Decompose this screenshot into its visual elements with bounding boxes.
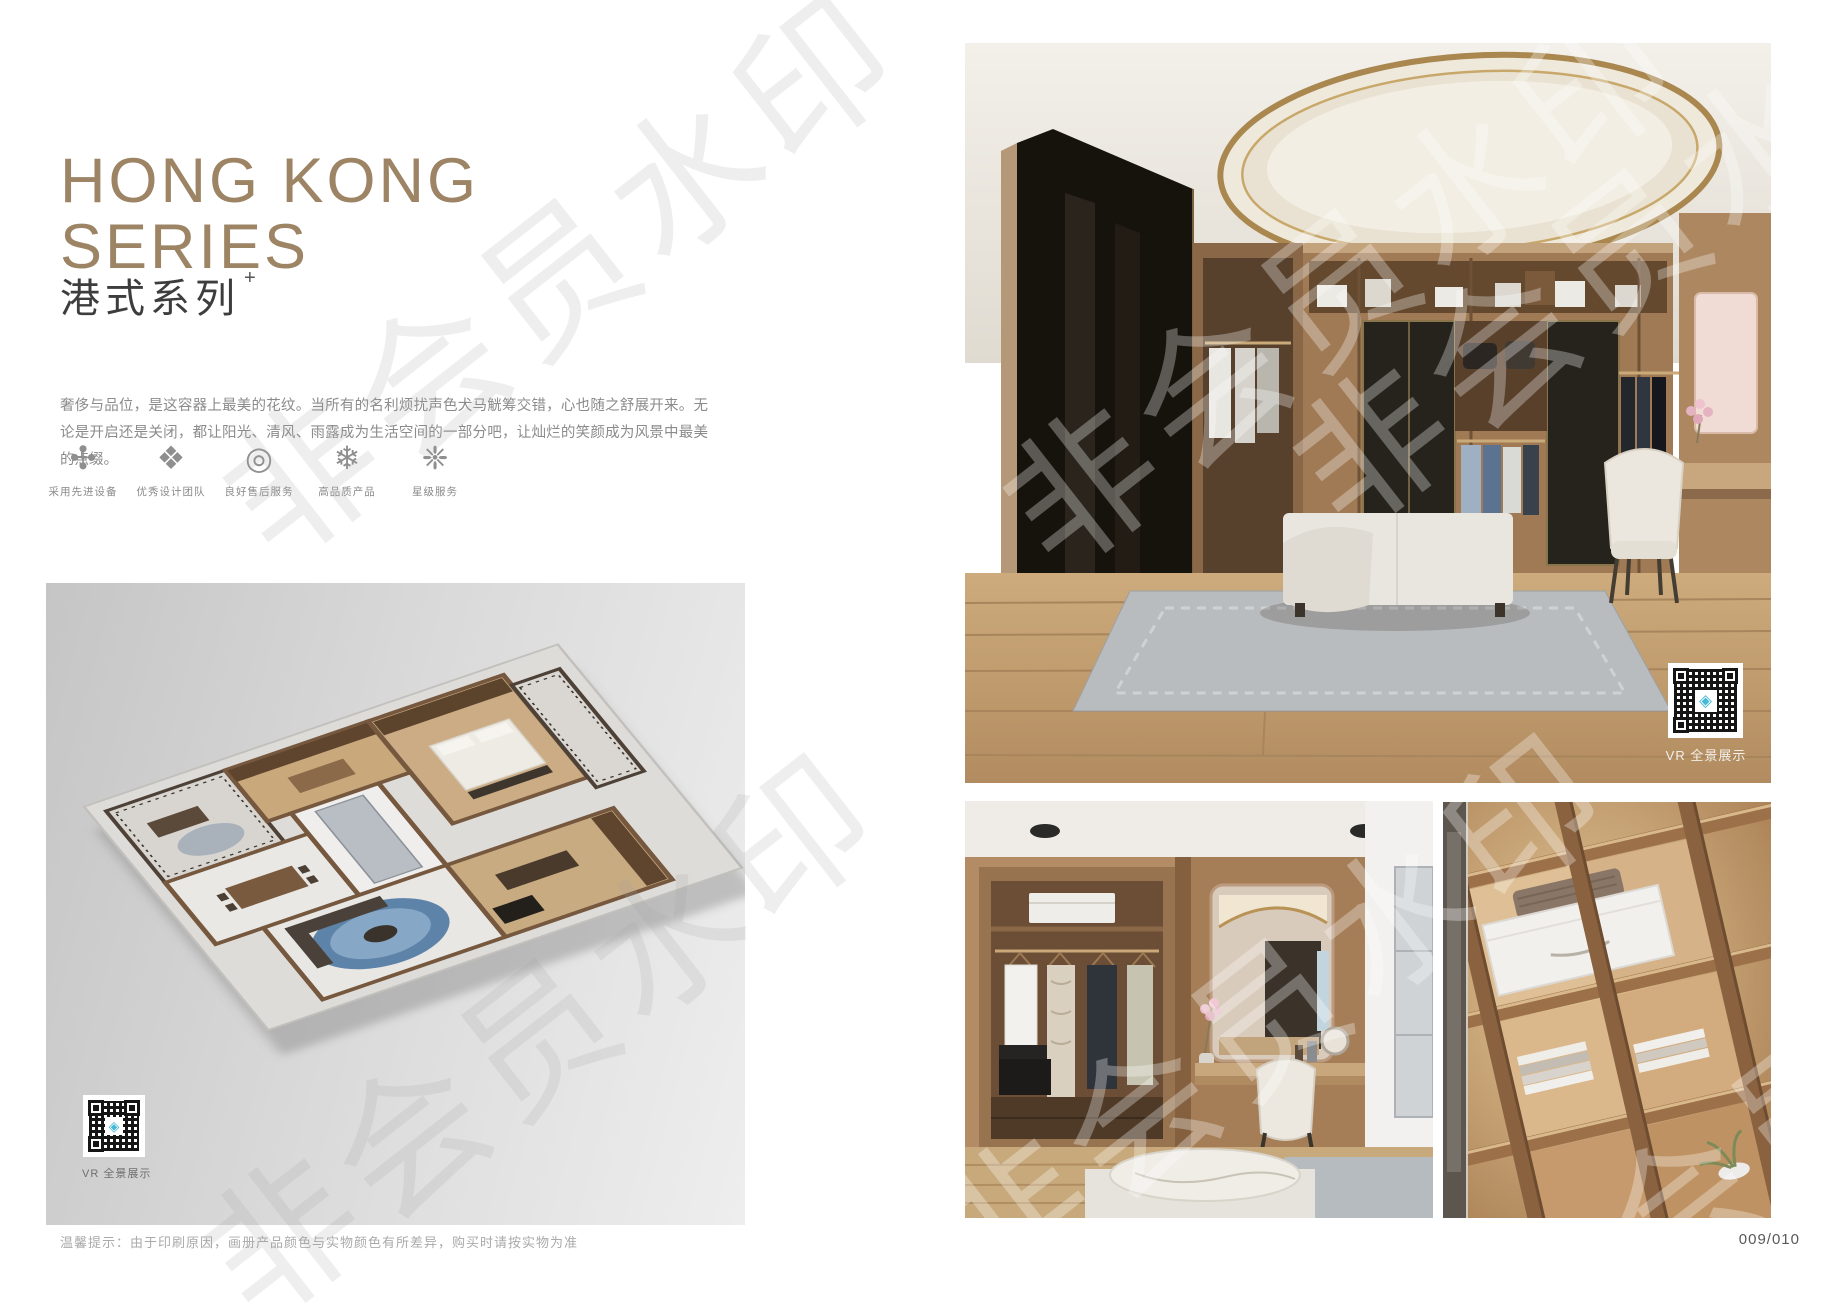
bed-ottoman [1283, 513, 1513, 617]
series-title-line1: HONG KONG [60, 148, 479, 214]
shelf-closeup-render [1443, 802, 1771, 1218]
feature-design-team: ❖ 优秀设计团队 [136, 438, 206, 499]
feature-label: 采用先进设备 [48, 484, 118, 499]
qr-finder [1673, 717, 1689, 733]
vr-cube-logo-icon: ◈ [1695, 690, 1717, 712]
feature-label: 优秀设计团队 [136, 484, 206, 499]
pinwheel-flower-icon: ✣ [48, 438, 118, 478]
catalog-page: HONG KONG SERIES 港式系列+ 奢侈与品位，是这容器上最美的花纹。… [0, 0, 1836, 1307]
feature-advanced-equipment: ✣ 采用先进设备 [48, 438, 118, 499]
floorplan-panel: ◈ VR 全景展示 [46, 583, 745, 1225]
qr-finder [124, 1100, 140, 1116]
page-number: 009/010 [1739, 1231, 1800, 1248]
ring-icon: ◎ [224, 438, 294, 478]
dressing-area-photo [965, 801, 1433, 1218]
diamond-ornament-icon: ❖ [136, 438, 206, 478]
feature-after-sales: ◎ 良好售后服务 [224, 438, 294, 499]
dark-cabinet-right [1547, 321, 1619, 565]
series-subtitle-text: 港式系列 [60, 277, 240, 321]
floorplan-qr-caption: VR 全景展示 [82, 1165, 148, 1181]
plus-superscript: + [244, 267, 261, 289]
qr-finder [88, 1100, 104, 1116]
feature-label: 星级服务 [400, 484, 470, 499]
dressing-area-render [965, 801, 1433, 1218]
shelf-closeup-photo [1443, 802, 1771, 1218]
main-photo-vr-qr-code: ◈ [1668, 663, 1743, 738]
floorplan-vr-qr-code: ◈ [83, 1095, 145, 1157]
watermark-text: 非会员水印 [170, 0, 942, 601]
main-photo-qr-caption: VR 全景展示 [1663, 745, 1749, 764]
snowflake-icon: ❄ [312, 438, 382, 478]
qr-finder [1673, 668, 1689, 684]
feature-star-service: ❈ 星级服务 [400, 438, 470, 499]
isometric-floorplan-render [46, 583, 745, 1225]
qr-finder [1722, 668, 1738, 684]
star-ornament-icon: ❈ [400, 438, 470, 478]
main-closet-photo: ◈ VR 全景展示 [965, 43, 1771, 783]
vr-cube-logo-icon: ◈ [105, 1117, 123, 1135]
series-title: HONG KONG SERIES [60, 148, 479, 280]
qr-finder [88, 1136, 104, 1152]
closet-room-render [965, 43, 1771, 783]
feature-label: 良好售后服务 [224, 484, 294, 499]
feature-icon-row: ✣ 采用先进设备 ❖ 优秀设计团队 ◎ 良好售后服务 ❄ 高品质产品 ❈ 星级服… [48, 438, 470, 499]
series-subtitle-cn: 港式系列+ [60, 266, 261, 324]
feature-label: 高品质产品 [312, 484, 382, 499]
footer-tip: 温馨提示：由于印刷原因，画册产品颜色与实物颜色有所差异，购买时请按实物为准 [60, 1232, 578, 1251]
feature-quality-product: ❄ 高品质产品 [312, 438, 382, 499]
floorplan-rooms [84, 644, 742, 1030]
